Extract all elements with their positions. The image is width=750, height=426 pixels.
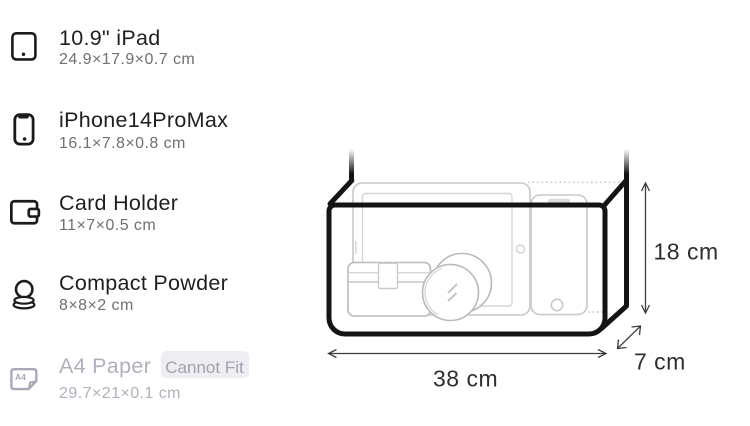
svg-text:18 cm: 18 cm — [654, 239, 719, 265]
svg-text:38 cm: 38 cm — [433, 366, 498, 392]
svg-text:7 cm: 7 cm — [634, 348, 686, 374]
